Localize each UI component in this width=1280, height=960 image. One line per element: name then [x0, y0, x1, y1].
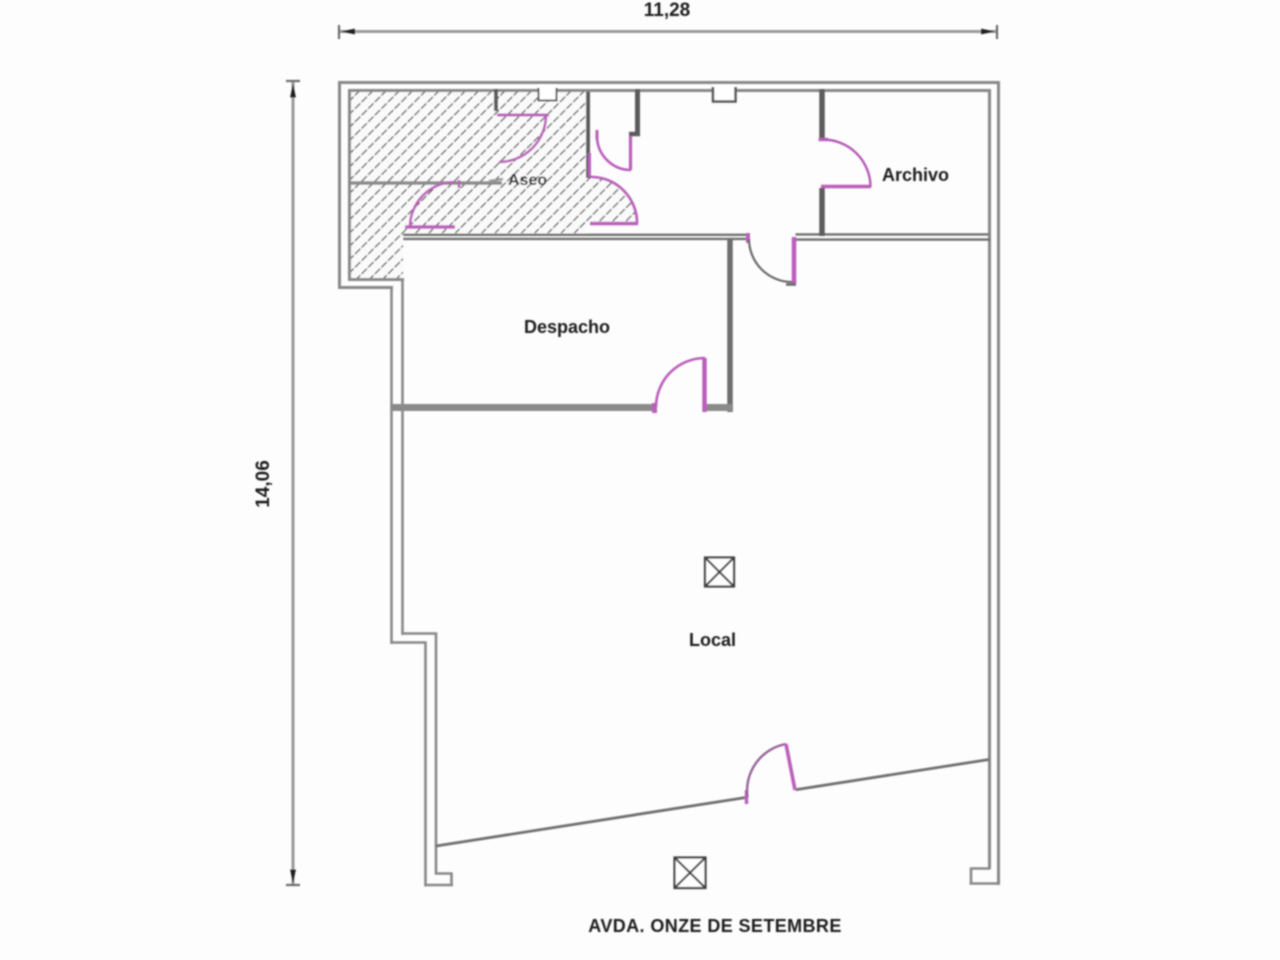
svg-text:Archivo: Archivo: [882, 165, 949, 185]
svg-text:AVDA. ONZE DE SETEMBRE: AVDA. ONZE DE SETEMBRE: [588, 916, 842, 936]
svg-text:14,06: 14,06: [253, 460, 274, 508]
svg-text:Aseo: Aseo: [508, 172, 547, 189]
svg-text:Local: Local: [689, 630, 736, 650]
svg-text:Despacho: Despacho: [524, 317, 610, 337]
svg-text:11,28: 11,28: [644, 0, 691, 21]
